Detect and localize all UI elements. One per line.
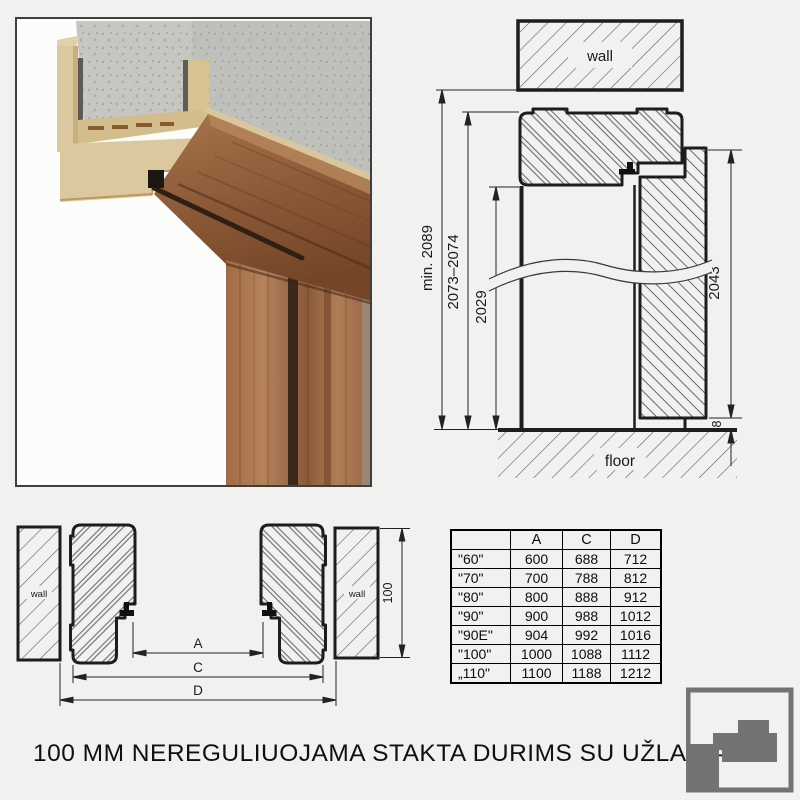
size-cell: "80" [451, 588, 511, 607]
right-jamb-profile [261, 525, 326, 663]
a-cell: 900 [511, 607, 563, 626]
c-cell: 1088 [563, 645, 611, 664]
d-cell: 712 [611, 550, 662, 569]
dim-min-height: min. 2089 [419, 225, 436, 291]
left-jamb-profile [71, 525, 136, 663]
c-cell: 688 [563, 550, 611, 569]
c-cell: 1188 [563, 664, 611, 684]
jamb-seal-groove [288, 252, 298, 485]
frame-head-section [520, 109, 682, 185]
left-wall-label: wall [30, 589, 47, 600]
c-cell: 992 [563, 626, 611, 645]
a-cell: 700 [511, 569, 563, 588]
table-row: "60" 600 688 712 [451, 550, 661, 569]
table-row: "90E" 904 992 1016 [451, 626, 661, 645]
c-cell: 788 [563, 569, 611, 588]
vertical-section-drawing: wall floor [415, 0, 800, 505]
d-cell: 1112 [611, 645, 662, 664]
a-cell: 904 [511, 626, 563, 645]
photo-render [17, 19, 370, 485]
d-cell: 1016 [611, 626, 662, 645]
size-cell: "70" [451, 569, 511, 588]
frame-corner-photo [15, 17, 372, 487]
dim-d-label: D [193, 683, 203, 698]
table-row: "70" 700 788 812 [451, 569, 661, 588]
table-header-cell: A [511, 530, 563, 550]
a-cell: 1100 [511, 664, 563, 684]
product-title: 100 MM NEREGULIUOJAMA STAKTA DURIMS SU U… [33, 740, 729, 768]
d-cell: 912 [611, 588, 662, 607]
horizontal-section-drawing: wall wall [10, 518, 415, 713]
dim-floor-gap: 8 [710, 420, 724, 427]
dim-a-label: A [193, 636, 202, 651]
table-row: "100" 1000 1088 1112 [451, 645, 661, 664]
dim-c-label: C [193, 660, 203, 675]
a-cell: 1000 [511, 645, 563, 664]
size-cell: "90" [451, 607, 511, 626]
d-cell: 812 [611, 569, 662, 588]
size-cell: "100" [451, 645, 511, 664]
c-cell: 888 [563, 588, 611, 607]
dimension-lines-right [708, 150, 742, 466]
table-header-cell [451, 530, 511, 550]
table-row: „110" 1100 1188 1212 [451, 664, 661, 684]
d-cell: 1012 [611, 607, 662, 626]
size-table: A C D "60" 600 688 712 "70" 700 788 812 … [450, 529, 662, 684]
c-cell: 988 [563, 607, 611, 626]
floor-label: floor [605, 453, 635, 470]
table-row: "80" 800 888 912 [451, 588, 661, 607]
catalog-page: wall floor [0, 0, 800, 800]
dim-depth-label: 100 [381, 583, 395, 604]
right-wall-label: wall [348, 589, 365, 600]
table-row: "90" 900 988 1012 [451, 607, 661, 626]
rubber-seal [148, 170, 164, 188]
wall-label: wall [586, 48, 613, 65]
brand-logo [686, 687, 794, 793]
frame-slot-right [183, 60, 188, 120]
frame-slot-left [78, 58, 83, 120]
size-cell: "90E" [451, 626, 511, 645]
size-cell: "60" [451, 550, 511, 569]
table-header-row: A C D [451, 530, 661, 550]
table-header-cell: C [563, 530, 611, 550]
a-cell: 800 [511, 588, 563, 607]
a-cell: 600 [511, 550, 563, 569]
dim-opening-height: 2029 [473, 290, 490, 323]
size-cell: „110" [451, 664, 511, 684]
dim-frame-height: 2073–2074 [445, 234, 462, 309]
d-cell: 1212 [611, 664, 662, 684]
logo-mark [688, 690, 791, 790]
table-header-cell: D [611, 530, 662, 550]
